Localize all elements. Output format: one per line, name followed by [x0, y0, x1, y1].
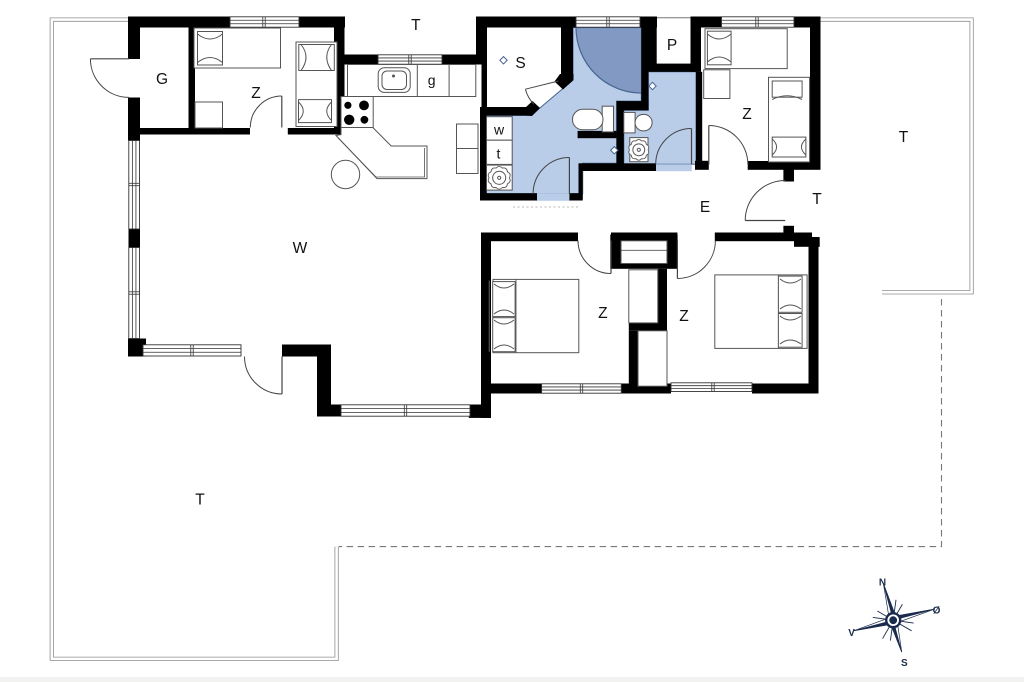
svg-text:Z: Z	[598, 305, 607, 322]
svg-text:Ø: Ø	[933, 606, 941, 617]
svg-text:N: N	[879, 578, 886, 589]
svg-text:S: S	[515, 55, 525, 72]
svg-text:T: T	[195, 492, 205, 509]
svg-text:G: G	[156, 71, 168, 88]
svg-text:W: W	[293, 240, 308, 257]
svg-text:T: T	[899, 129, 909, 146]
svg-text:V: V	[848, 628, 855, 639]
svg-text:Z: Z	[742, 106, 751, 123]
svg-text:P: P	[667, 37, 677, 54]
svg-text:t: t	[497, 146, 501, 162]
svg-text:S: S	[901, 658, 908, 669]
svg-text:g: g	[428, 72, 436, 88]
svg-text:E: E	[700, 199, 710, 216]
svg-text:T: T	[812, 191, 822, 208]
svg-text:w: w	[493, 122, 505, 138]
svg-text:Z: Z	[679, 308, 688, 325]
svg-text:Z: Z	[251, 85, 260, 102]
svg-text:T: T	[411, 17, 421, 34]
